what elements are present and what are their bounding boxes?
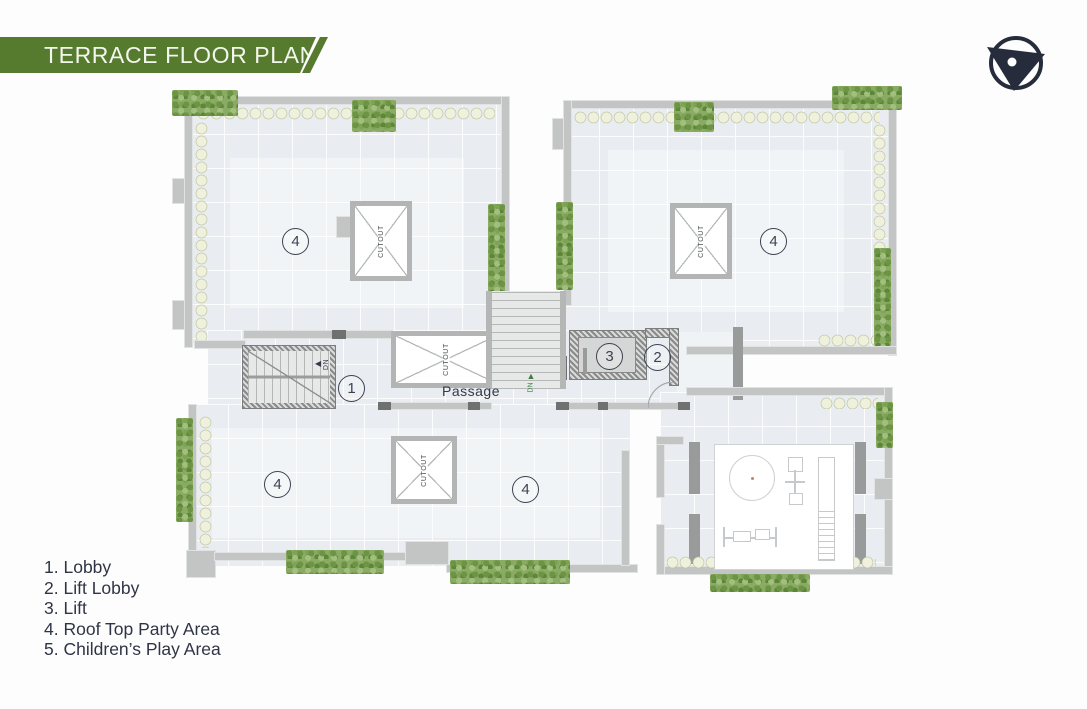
wall-tab [172,300,185,330]
cutout-label: CUTOUT [420,452,427,489]
seesaw-end [723,527,725,547]
wall [656,436,665,498]
door-jamb [378,402,391,410]
wall-tab [874,478,893,500]
hedge-row [195,122,208,340]
shrub-patch [674,102,714,132]
cutout-top-right: CUTOUT [670,203,732,279]
column [855,442,866,494]
wall [656,524,665,575]
wall [686,387,893,396]
marker-party-area-4: 4 [512,476,539,503]
dn-label: DN [323,358,330,369]
hedge-row [574,111,880,124]
slide [818,457,835,561]
seesaw-end [775,527,777,547]
wall [184,96,193,348]
door-swing-arc [648,382,674,408]
cutout-label: CUTOUT [442,341,449,378]
merry-go-round [729,455,775,501]
hedge-row [818,334,882,347]
wall [686,346,897,355]
cutout-passage: CUTOUT [391,331,501,388]
marker-lift: 3 [596,343,623,370]
shrub-patch [556,202,573,290]
down-direction-west: ◀ DN [315,356,341,372]
column [689,442,700,494]
marker-lobby: 1 [338,375,365,402]
shrub-patch [450,560,570,584]
floor-plan: CUTOUT CUTOUT CUTOUT CUTOUT 1 2 [0,0,1087,709]
wall-tab [552,118,564,150]
wall [656,436,684,445]
cutout-label: CUTOUT [697,223,704,260]
shrub-patch [286,550,384,574]
dn-label: DN [528,382,535,392]
marker-party-area-2: 4 [760,228,787,255]
shrub-patch [352,100,396,132]
shrub-patch [172,90,238,116]
wall-tab [405,541,449,565]
childrens-play-area [714,444,854,570]
hedge-row [199,416,212,548]
wall-tab [336,216,351,238]
wall [621,450,630,566]
down-direction-center: ▲ DN [524,372,538,400]
door-jamb [556,402,569,410]
passage-label: Passage [428,383,514,399]
cutout-label: CUTOUT [377,223,384,260]
shrub-patch [832,86,902,110]
wall-tab [172,178,185,204]
terrace-floor-plan-page: TERRACE FLOOR PLAN 1. Lobby 2. Lift Lobb… [0,0,1087,709]
shrub-patch [874,248,891,346]
seesaw-seat [733,531,751,542]
swing-seat [789,493,803,505]
wall [194,340,246,349]
door-jamb [598,402,608,410]
swing-bar [785,481,805,483]
center-dot [751,477,754,480]
shrub-patch [710,574,810,592]
hedge-row [820,397,878,409]
cutout-bottom-left: CUTOUT [391,436,457,504]
wall-corner [186,550,216,578]
lift-door [583,348,587,374]
left-arrow-icon: ◀ [315,360,321,368]
marker-lift-lobby: 2 [644,344,671,371]
seesaw-seat [755,529,770,540]
cutout-top-left: CUTOUT [350,201,412,281]
hedge-row [197,107,495,120]
shrub-patch [176,418,193,522]
door-jamb [678,402,690,410]
shrub-patch [488,204,505,294]
up-arrow-icon: ▲ [527,372,536,381]
door-jamb [468,402,480,410]
marker-party-area-1: 4 [282,228,309,255]
shrub-patch [876,402,893,448]
wall [243,330,393,339]
door-jamb [332,330,346,339]
lobby-wall [670,329,678,385]
marker-party-area-3: 4 [264,471,291,498]
slide-ladder [819,508,834,560]
